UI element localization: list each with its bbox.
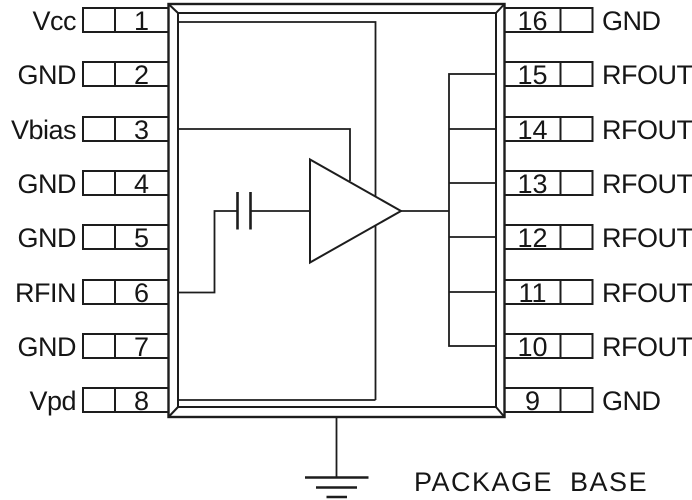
pin-label: Vbias	[11, 115, 76, 145]
pin-label: RFOUT	[602, 223, 692, 253]
pin-number: 5	[134, 223, 149, 253]
pin-pad	[83, 62, 115, 86]
pin-pad	[561, 334, 593, 358]
pin-number: 15	[517, 60, 547, 90]
earth-ground-icon	[305, 478, 369, 498]
diagram-canvas: 1 Vcc 2 GND 3 Vbias 4 GND 5 GND 6 RFIN 7…	[0, 0, 692, 500]
pin-pad	[561, 117, 593, 141]
pin-row-right-13: 13 RFOUT	[505, 169, 692, 199]
pin-number: 1	[134, 6, 149, 36]
pin-number: 4	[134, 169, 149, 199]
pin-number: 3	[134, 115, 149, 145]
pin-label: GND	[18, 169, 77, 199]
pin-label: RFOUT	[602, 332, 692, 362]
pin-label: GND	[18, 60, 77, 90]
pin-row-left-7: 7 GND	[18, 332, 169, 362]
corner-bevel-bottom-right	[496, 407, 505, 417]
corner-bevel-top-right	[496, 4, 505, 13]
pin-number: 2	[134, 60, 149, 90]
pin-pad	[83, 117, 115, 141]
pin-label: RFOUT	[602, 169, 692, 199]
pin-pad	[83, 280, 115, 304]
pin-label: GND	[602, 6, 661, 36]
pin-number: 12	[517, 223, 547, 253]
internal-circuit	[178, 22, 496, 497]
rfout-bus-frame	[449, 74, 496, 346]
pin-number: 9	[525, 386, 540, 416]
corner-bevel-bottom-left	[169, 407, 179, 417]
pin-pad	[83, 225, 115, 249]
pin-number: 8	[134, 386, 149, 416]
pin-number: 16	[517, 6, 547, 36]
pin-number: 6	[134, 278, 149, 308]
pin-row-left-2: 2 GND	[18, 60, 169, 90]
pin-pad	[83, 8, 115, 32]
pin-row-right-15: 15 RFOUT	[505, 60, 692, 90]
pin-row-left-4: 4 GND	[18, 169, 169, 199]
corner-bevel-top-left	[169, 4, 179, 13]
pin-row-right-11: 11 RFOUT	[505, 278, 692, 308]
pin-row-left-6: 6 RFIN	[15, 278, 169, 308]
pin-label: RFIN	[15, 278, 76, 308]
rfout-bus	[449, 74, 496, 346]
pin-label: RFOUT	[602, 115, 692, 145]
pin-label: GND	[18, 223, 77, 253]
pin-row-right-16: 16 GND	[505, 6, 661, 36]
pin-row-right-12: 12 RFOUT	[505, 223, 692, 253]
pin-row-right-14: 14 RFOUT	[505, 115, 692, 145]
pin-number: 10	[517, 332, 547, 362]
pin-row-left-5: 5 GND	[18, 223, 169, 253]
pin-pad	[561, 62, 593, 86]
pin-row-left-3: 3 Vbias	[11, 115, 169, 145]
pin-row-right-10: 10 RFOUT	[505, 332, 692, 362]
pin-pad	[561, 225, 593, 249]
pin-pad	[561, 8, 593, 32]
pin-pad	[561, 280, 593, 304]
pin-pad	[83, 171, 115, 195]
rf-amplifier-triangle-icon	[310, 160, 401, 263]
pin-pad	[561, 171, 593, 195]
pin-number: 11	[518, 278, 546, 308]
ic-block-diagram: 1 Vcc 2 GND 3 Vbias 4 GND 5 GND 6 RFIN 7…	[0, 0, 692, 500]
dc-blocking-capacitor-icon	[238, 192, 251, 230]
pin-pad	[83, 388, 115, 412]
pin-number: 7	[134, 332, 149, 362]
pin-pad	[561, 388, 593, 412]
package-base-label: PACKAGE BASE	[414, 467, 648, 497]
pin-row-left-8: 8 Vpd	[29, 386, 168, 416]
rfin-wire	[178, 211, 238, 293]
pin-number: 14	[517, 115, 547, 145]
pin-row-right-9: 9 GND	[505, 386, 661, 416]
rfout-bus-rungs	[449, 129, 496, 292]
pin-label: RFOUT	[602, 278, 692, 308]
pin-label: RFOUT	[602, 60, 692, 90]
pin-label: Vpd	[29, 386, 76, 416]
pin-number: 13	[517, 169, 547, 199]
pin-row-left-1: 1 Vcc	[32, 6, 168, 36]
pin-label: Vcc	[32, 6, 76, 36]
pin-label: GND	[602, 386, 661, 416]
pin-pad	[83, 334, 115, 358]
pin-label: GND	[18, 332, 77, 362]
